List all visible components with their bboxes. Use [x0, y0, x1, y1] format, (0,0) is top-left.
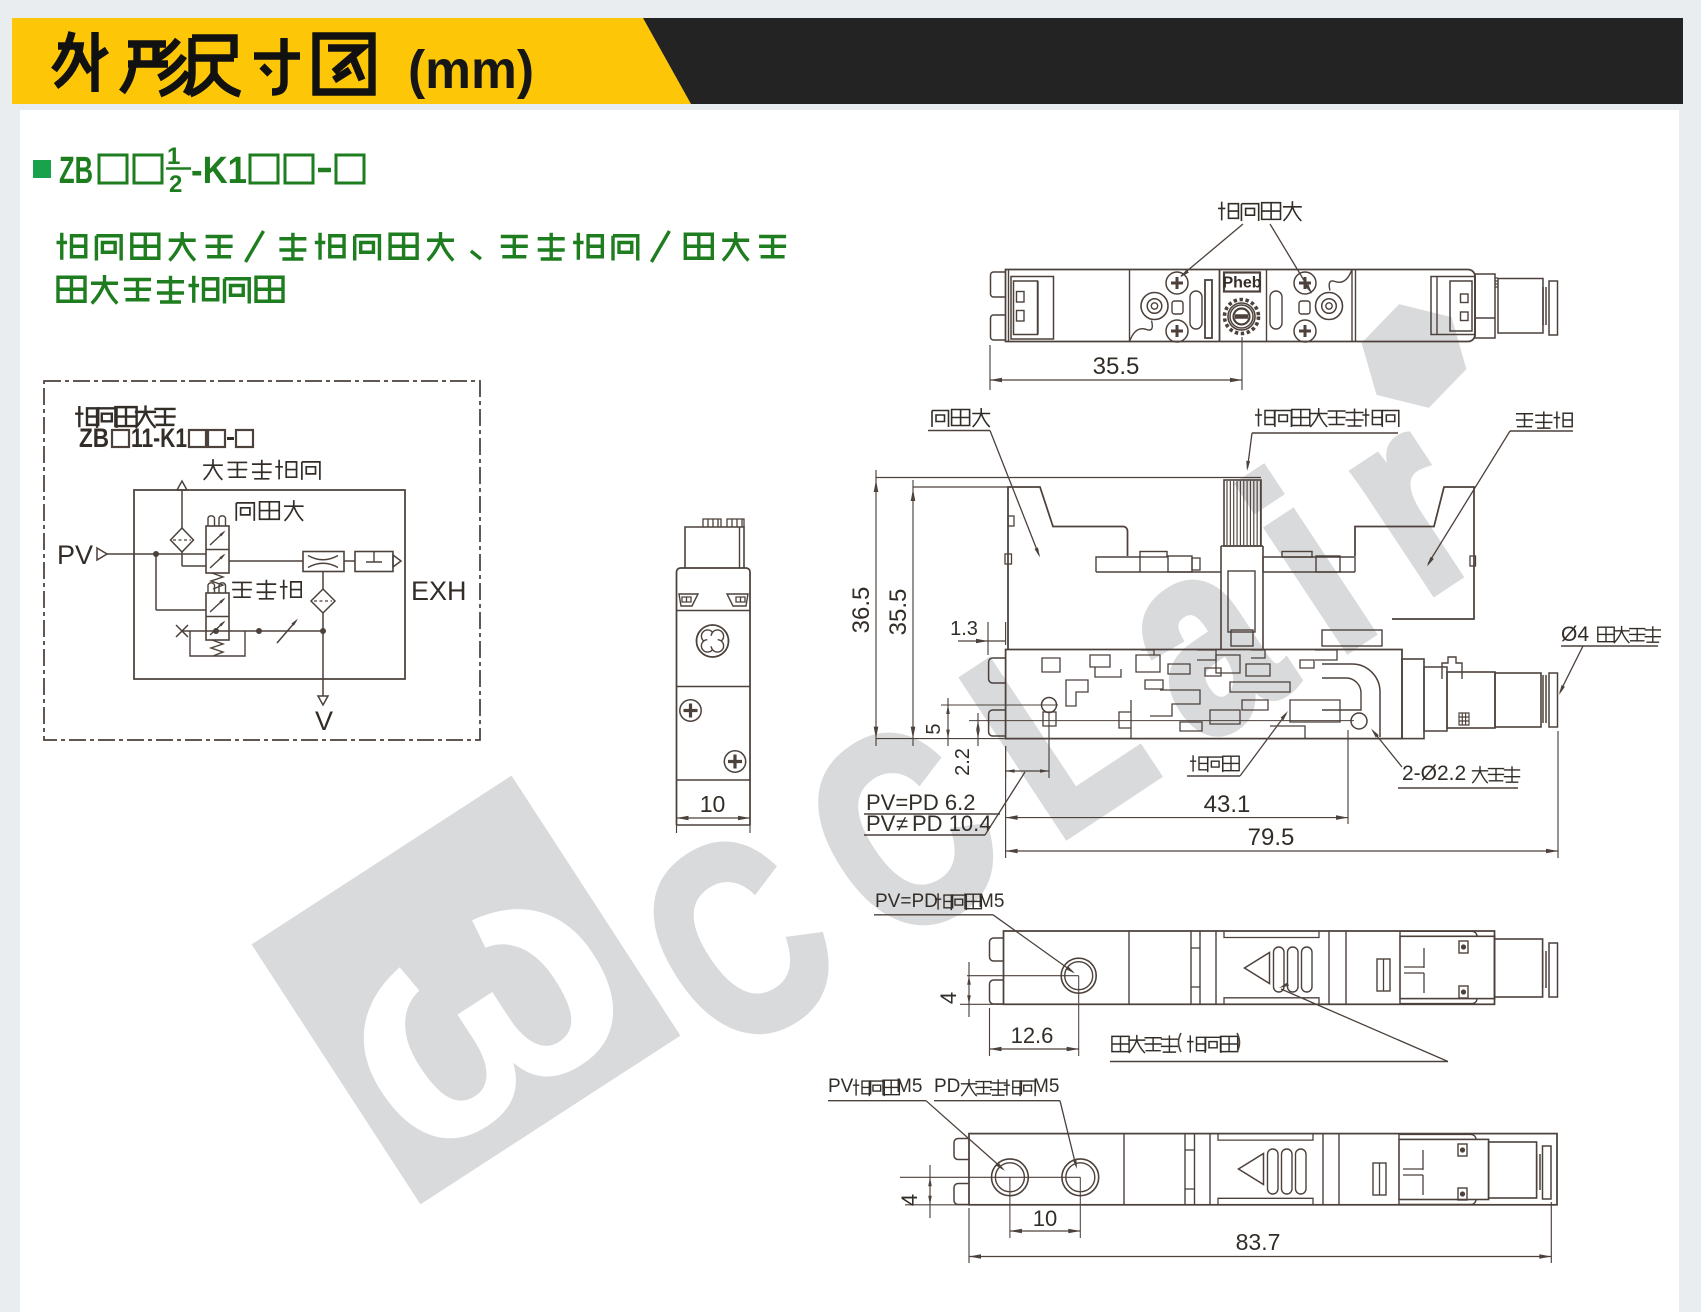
svg-text:36.5: 36.5	[848, 587, 875, 634]
svg-text:10: 10	[700, 791, 726, 817]
svg-text:M5: M5	[978, 891, 1004, 912]
svg-text:1.3: 1.3	[950, 618, 978, 640]
svg-text:ZB: ZB	[59, 150, 93, 192]
svg-text:35.5: 35.5	[885, 589, 912, 636]
svg-text:2-Ø2.2: 2-Ø2.2	[1402, 762, 1466, 785]
svg-text:PV: PV	[828, 1076, 854, 1097]
svg-text:M5: M5	[896, 1076, 922, 1097]
svg-text:ω: ω	[253, 766, 688, 1227]
svg-text:5: 5	[923, 723, 945, 734]
svg-text:PV=PD: PV=PD	[875, 891, 938, 912]
svg-text:2.2: 2.2	[952, 748, 974, 776]
svg-text:Ø4: Ø4	[1561, 623, 1589, 646]
svg-text:1: 1	[167, 143, 180, 170]
svg-text:-K1: -K1	[191, 150, 247, 192]
svg-text:11-K1: 11-K1	[131, 423, 187, 453]
svg-text:Pheb: Pheb	[1222, 275, 1261, 292]
svg-text:12.6: 12.6	[1011, 1023, 1054, 1048]
svg-text:V: V	[315, 706, 333, 736]
svg-text:ZB: ZB	[79, 423, 109, 453]
svg-text:10: 10	[1033, 1206, 1057, 1231]
svg-text:(mm): (mm)	[408, 40, 534, 100]
svg-text:CCLair: CCLair	[592, 326, 1560, 1108]
svg-text:PD 10.4: PD 10.4	[912, 811, 992, 836]
svg-text:PV: PV	[57, 540, 93, 570]
svg-text:4: 4	[936, 992, 961, 1004]
svg-text:≠: ≠	[896, 811, 908, 836]
svg-text:PV: PV	[866, 811, 896, 836]
svg-text:2: 2	[169, 171, 182, 198]
svg-text:4: 4	[897, 1194, 922, 1206]
svg-text:83.7: 83.7	[1236, 1229, 1281, 1255]
svg-text:43.1: 43.1	[1204, 791, 1251, 818]
svg-text:M5: M5	[1033, 1076, 1059, 1097]
svg-text:PD: PD	[934, 1076, 960, 1097]
svg-text:79.5: 79.5	[1248, 824, 1295, 851]
svg-text:EXH: EXH	[411, 576, 467, 606]
svg-text:35.5: 35.5	[1093, 353, 1140, 380]
